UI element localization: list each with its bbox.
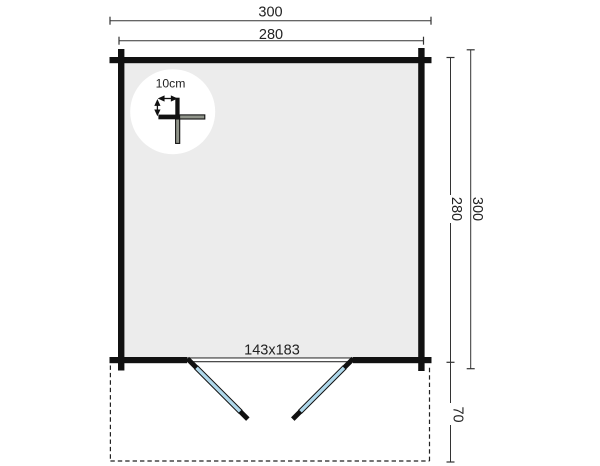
svg-text:300: 300 — [469, 197, 485, 221]
svg-text:300: 300 — [258, 5, 282, 21]
svg-text:10cm: 10cm — [156, 77, 186, 91]
svg-text:70: 70 — [450, 406, 466, 422]
svg-text:280: 280 — [259, 27, 283, 43]
svg-text:143x183: 143x183 — [244, 343, 300, 359]
svg-text:280: 280 — [448, 197, 464, 221]
